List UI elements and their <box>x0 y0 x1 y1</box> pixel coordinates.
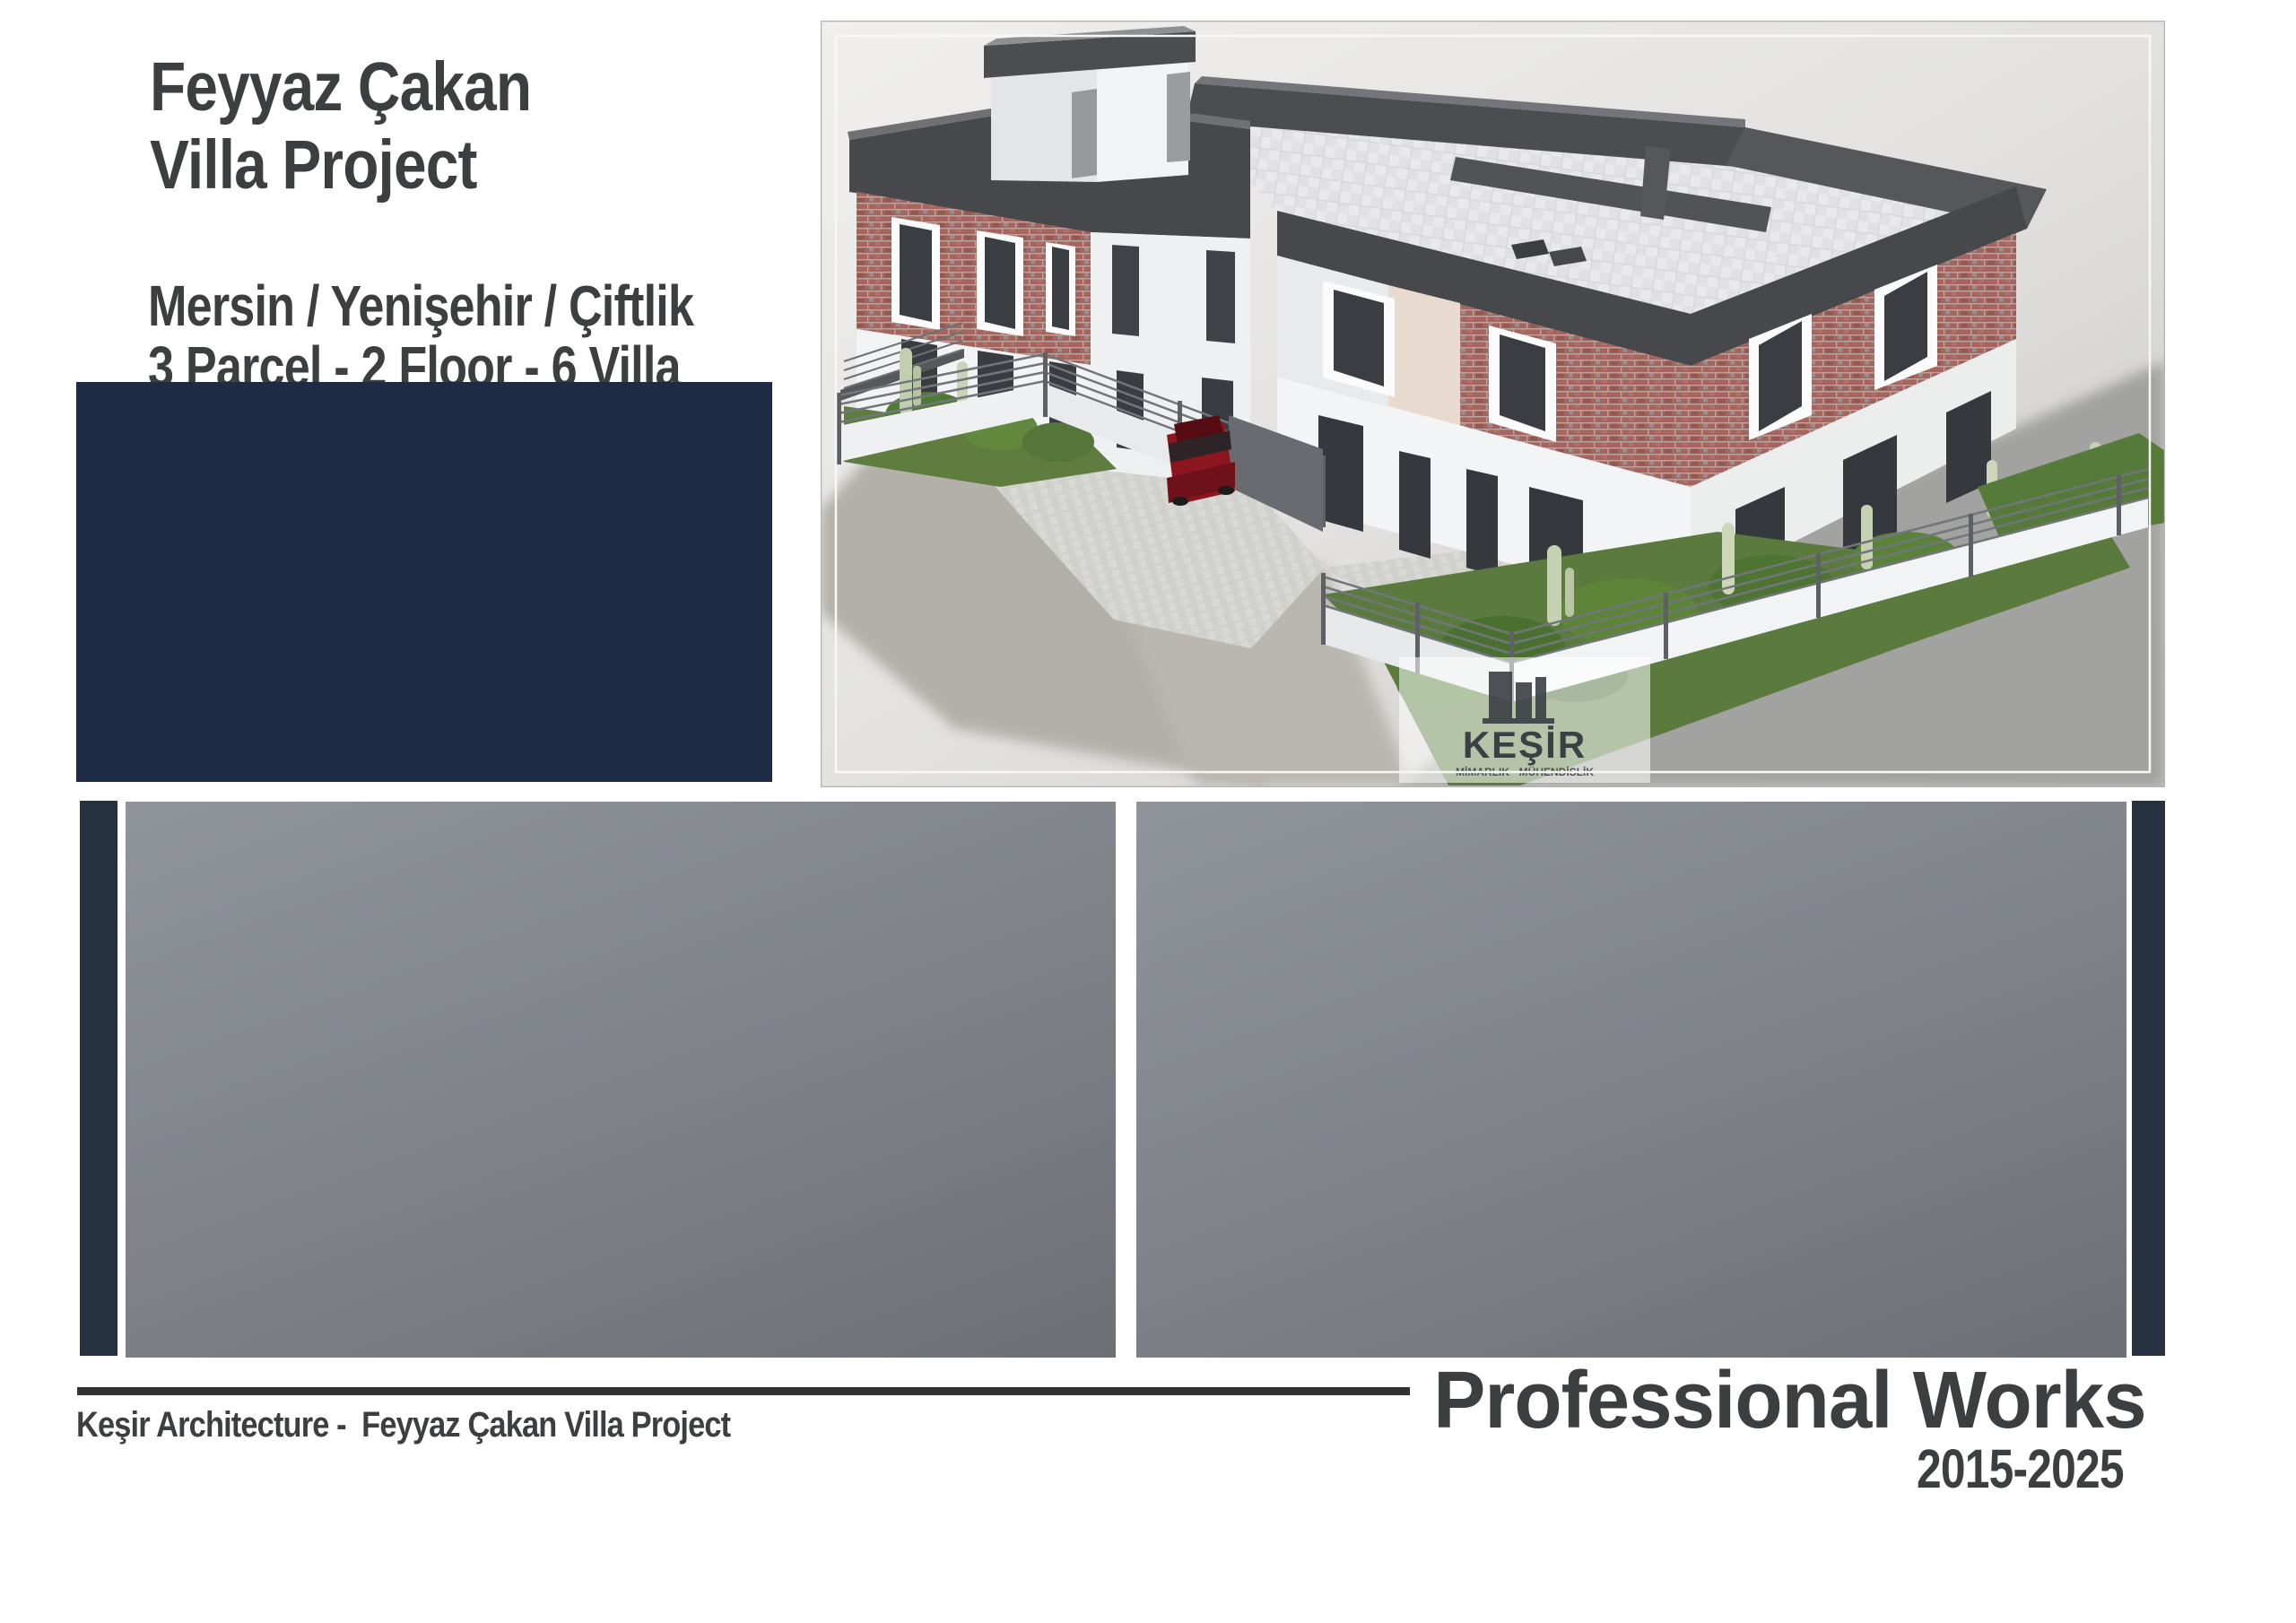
svg-text:KEŞİR: KEŞİR <box>1463 724 1587 766</box>
